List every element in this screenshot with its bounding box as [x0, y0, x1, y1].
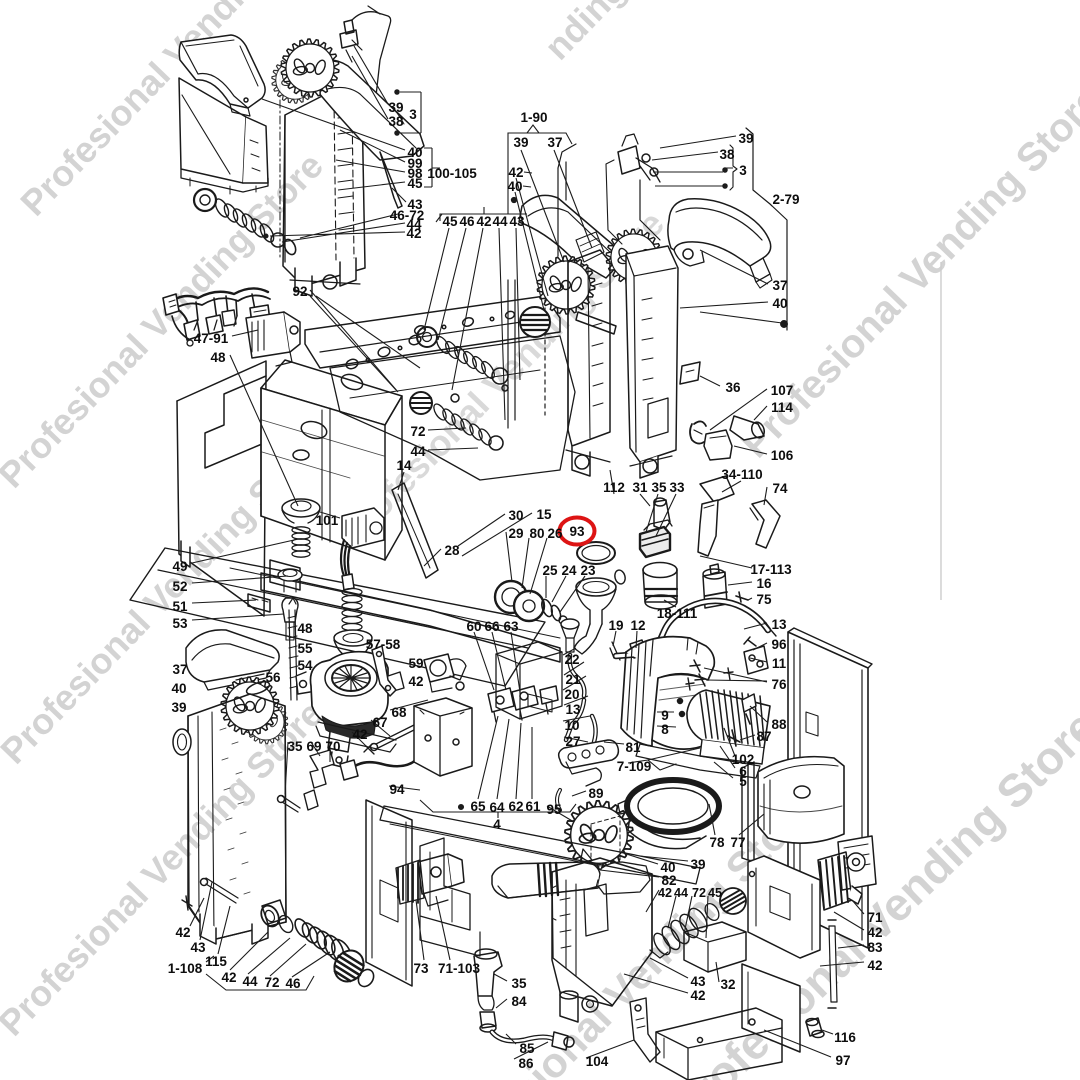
svg-text:92: 92: [292, 284, 307, 299]
svg-text:68: 68: [391, 705, 407, 720]
svg-text:7-109: 7-109: [617, 759, 652, 774]
svg-text:70: 70: [325, 739, 340, 754]
svg-text:38: 38: [388, 114, 404, 129]
svg-text:4: 4: [493, 817, 501, 832]
svg-text:39: 39: [690, 857, 705, 872]
svg-text:11: 11: [772, 656, 787, 671]
svg-text:55: 55: [297, 641, 313, 656]
svg-text:101: 101: [316, 513, 339, 528]
svg-text:40: 40: [507, 179, 522, 194]
svg-text:42: 42: [867, 925, 882, 940]
svg-text:94: 94: [389, 782, 405, 797]
svg-text:95: 95: [546, 802, 562, 817]
svg-text:42: 42: [867, 958, 882, 973]
svg-text:46: 46: [459, 214, 475, 229]
svg-text:42: 42: [476, 214, 491, 229]
svg-text:32: 32: [720, 977, 735, 992]
svg-text:24: 24: [561, 563, 577, 578]
svg-text:42: 42: [408, 674, 423, 689]
svg-text:76: 76: [771, 677, 787, 692]
svg-text:35: 35: [651, 480, 667, 495]
svg-text:40: 40: [171, 681, 186, 696]
svg-text:39: 39: [171, 700, 186, 715]
svg-text:9: 9: [661, 708, 669, 723]
svg-text:34-110: 34-110: [721, 467, 762, 482]
svg-text:42: 42: [352, 727, 367, 742]
svg-text:35: 35: [511, 976, 527, 991]
svg-text:27: 27: [565, 734, 580, 749]
svg-text:60: 60: [466, 619, 481, 634]
svg-text:13: 13: [565, 702, 581, 717]
svg-text:25: 25: [542, 563, 558, 578]
svg-text:47-91: 47-91: [194, 331, 229, 346]
svg-text:1-90: 1-90: [520, 110, 547, 125]
svg-text:77: 77: [730, 835, 745, 850]
svg-text:106: 106: [771, 448, 794, 463]
svg-text:nding Store: nding Store: [536, 0, 704, 68]
svg-text:97: 97: [835, 1053, 850, 1068]
svg-text:19: 19: [608, 618, 623, 633]
svg-text:69: 69: [306, 739, 321, 754]
svg-text:44: 44: [242, 974, 258, 989]
svg-text:39: 39: [738, 131, 753, 146]
svg-text:52: 52: [172, 579, 187, 594]
svg-text:10: 10: [564, 718, 579, 733]
svg-text:57-58: 57-58: [366, 637, 401, 652]
svg-text:56: 56: [265, 670, 281, 685]
svg-text:44: 44: [492, 214, 508, 229]
svg-text:38: 38: [719, 147, 735, 162]
svg-text:64: 64: [489, 800, 505, 815]
svg-text:26: 26: [547, 526, 563, 541]
svg-text:13: 13: [771, 617, 787, 632]
svg-text:75: 75: [756, 592, 772, 607]
svg-text:40: 40: [772, 296, 787, 311]
svg-text:54: 54: [297, 658, 313, 673]
svg-text:84: 84: [511, 994, 527, 1009]
svg-text:45: 45: [407, 176, 423, 191]
svg-text:33: 33: [669, 480, 685, 495]
svg-text:61: 61: [525, 799, 541, 814]
svg-text:67: 67: [372, 715, 387, 730]
svg-text:30: 30: [508, 508, 523, 523]
svg-text:37: 37: [772, 278, 787, 293]
svg-text:29: 29: [508, 526, 523, 541]
svg-text:42: 42: [221, 970, 236, 985]
svg-text:5: 5: [739, 774, 747, 789]
svg-text:15: 15: [536, 507, 552, 522]
svg-text:114: 114: [771, 400, 793, 415]
svg-text:23: 23: [580, 563, 596, 578]
svg-text:48: 48: [297, 621, 313, 636]
svg-text:88: 88: [771, 717, 787, 732]
svg-text:100-105: 100-105: [427, 166, 477, 181]
svg-text:44: 44: [674, 886, 688, 900]
svg-text:86: 86: [518, 1056, 534, 1071]
svg-text:45: 45: [708, 886, 722, 900]
svg-text:53: 53: [172, 616, 188, 631]
svg-text:63: 63: [503, 619, 519, 634]
svg-text:48: 48: [210, 350, 226, 365]
svg-text:104: 104: [586, 1054, 609, 1069]
svg-text:1-108: 1-108: [168, 961, 203, 976]
svg-text:22: 22: [564, 652, 579, 667]
svg-text:62: 62: [508, 799, 523, 814]
svg-text:45: 45: [442, 214, 458, 229]
svg-text:116: 116: [834, 1030, 856, 1045]
svg-text:42: 42: [175, 925, 190, 940]
svg-text:80: 80: [529, 526, 544, 541]
svg-text:72: 72: [264, 975, 279, 990]
svg-text:81: 81: [625, 740, 641, 755]
svg-text:42: 42: [508, 165, 523, 180]
svg-text:72: 72: [692, 886, 706, 900]
svg-text:87: 87: [756, 729, 771, 744]
svg-text:18-111: 18-111: [657, 606, 698, 621]
svg-text:39: 39: [388, 100, 403, 115]
svg-text:21: 21: [565, 672, 581, 687]
svg-text:93: 93: [569, 524, 585, 539]
svg-text:43: 43: [690, 974, 706, 989]
svg-text:31: 31: [632, 480, 648, 495]
svg-text:73: 73: [413, 961, 429, 976]
svg-text:37: 37: [547, 135, 562, 150]
svg-text:49: 49: [172, 559, 187, 574]
svg-text:107: 107: [771, 383, 794, 398]
svg-text:12: 12: [630, 618, 645, 633]
svg-text:46: 46: [285, 976, 301, 991]
svg-text:89: 89: [588, 786, 603, 801]
svg-text:83: 83: [867, 940, 883, 955]
svg-text:35: 35: [287, 739, 303, 754]
svg-text:3: 3: [739, 163, 747, 178]
svg-text:71: 71: [867, 910, 883, 925]
svg-text:16: 16: [756, 576, 772, 591]
svg-text:14: 14: [396, 458, 412, 473]
svg-text:42: 42: [406, 226, 421, 241]
svg-text:78: 78: [709, 835, 725, 850]
svg-text:71-103: 71-103: [438, 961, 481, 976]
svg-text:43: 43: [190, 940, 206, 955]
svg-text:42: 42: [690, 988, 705, 1003]
svg-text:51: 51: [172, 599, 188, 614]
svg-text:3: 3: [409, 107, 417, 122]
svg-text:36: 36: [725, 380, 741, 395]
svg-text:72: 72: [410, 424, 425, 439]
svg-text:39: 39: [513, 135, 528, 150]
svg-text:8: 8: [661, 722, 669, 737]
svg-text:17-113: 17-113: [750, 562, 792, 577]
svg-text:65: 65: [470, 799, 486, 814]
svg-text:96: 96: [771, 637, 787, 652]
svg-text:112: 112: [603, 480, 625, 495]
svg-text:43: 43: [509, 214, 525, 229]
svg-text:42: 42: [658, 886, 672, 900]
svg-text:44: 44: [410, 444, 426, 459]
svg-text:115: 115: [205, 954, 227, 969]
svg-text:37: 37: [172, 662, 187, 677]
svg-text:85: 85: [519, 1041, 535, 1056]
svg-text:20: 20: [564, 687, 579, 702]
svg-text:2-79: 2-79: [772, 192, 799, 207]
svg-text:66: 66: [484, 619, 500, 634]
svg-text:74: 74: [772, 481, 788, 496]
svg-text:59: 59: [408, 656, 423, 671]
svg-text:28: 28: [444, 543, 460, 558]
